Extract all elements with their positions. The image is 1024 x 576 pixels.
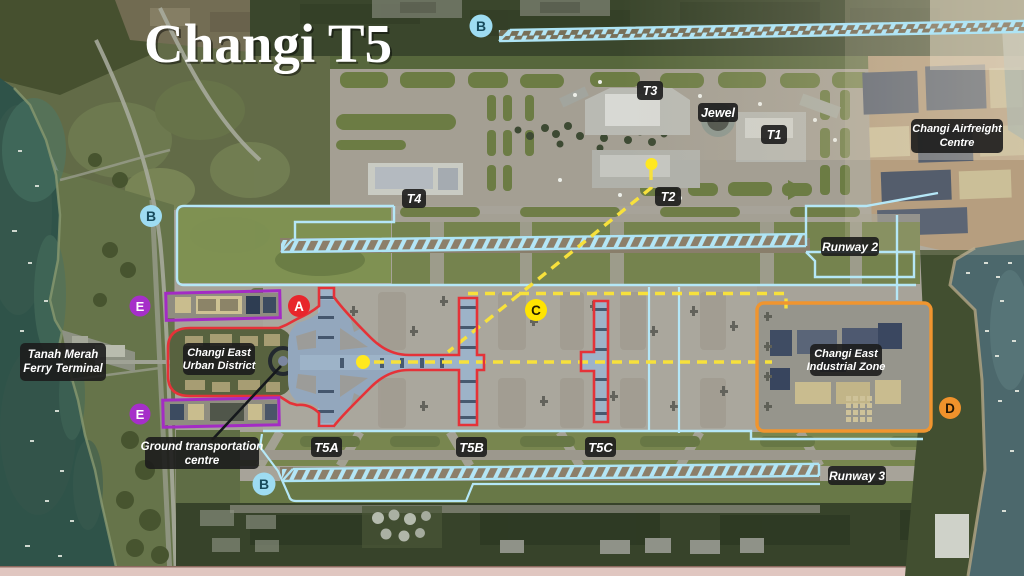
svg-text:T5A: T5A — [314, 440, 339, 455]
svg-text:T1: T1 — [767, 128, 782, 142]
svg-text:Ground transportation: Ground transportation — [141, 441, 264, 453]
svg-text:Changi East: Changi East — [814, 348, 879, 360]
svg-text:Runway 3: Runway 3 — [829, 469, 885, 483]
svg-text:E: E — [136, 299, 145, 314]
svg-text:B: B — [476, 18, 486, 34]
svg-text:T3: T3 — [643, 84, 658, 98]
svg-text:T2: T2 — [661, 190, 676, 204]
svg-text:centre: centre — [185, 455, 220, 467]
svg-text:Changi Airfreight: Changi Airfreight — [912, 123, 1003, 135]
svg-text:Urban District: Urban District — [183, 360, 257, 372]
svg-text:D: D — [945, 401, 955, 416]
svg-text:Changi T5: Changi T5 — [144, 13, 392, 74]
svg-text:Industrial Zone: Industrial Zone — [807, 361, 886, 373]
svg-text:Jewel: Jewel — [701, 106, 736, 120]
svg-text:Changi East: Changi East — [187, 347, 252, 359]
svg-text:B: B — [146, 208, 156, 224]
svg-text:E: E — [136, 407, 145, 422]
svg-text:A: A — [294, 299, 304, 314]
svg-text:Centre: Centre — [940, 137, 975, 149]
svg-text:Runway 2: Runway 2 — [822, 240, 878, 254]
svg-text:B: B — [259, 476, 269, 492]
svg-text:T5B: T5B — [459, 440, 484, 455]
svg-text:T4: T4 — [407, 192, 422, 206]
svg-text:Tanah Merah: Tanah Merah — [28, 349, 99, 361]
svg-text:T5C: T5C — [588, 440, 613, 455]
svg-text:Ferry Terminal: Ferry Terminal — [23, 363, 103, 375]
svg-text:C: C — [531, 303, 541, 318]
